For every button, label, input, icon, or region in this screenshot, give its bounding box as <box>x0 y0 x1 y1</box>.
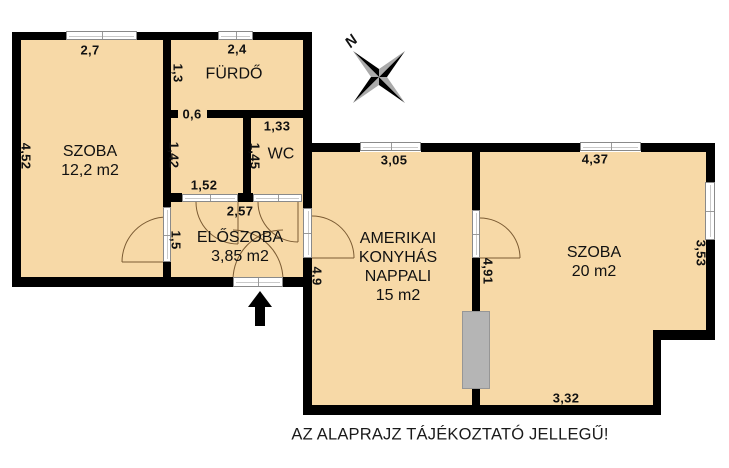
dim-label: 2,57 <box>227 204 254 219</box>
dim-label: 3,53 <box>694 240 709 267</box>
room-area: 20 m2 <box>567 262 621 281</box>
room-label-nappali: AMERIKAI KONYHÁS NAPPALI 15 m2 <box>359 229 437 305</box>
room-name: WC <box>268 145 295 164</box>
room-area: 3,85 m2 <box>197 247 283 266</box>
room-area: 15 m2 <box>359 286 437 305</box>
dim-label: 4,52 <box>19 143 34 170</box>
room-area: 12,2 m2 <box>61 161 119 180</box>
room-label-wc: WC <box>268 145 295 164</box>
room-label-szoba-right: SZOBA 20 m2 <box>567 243 621 281</box>
room-name: NAPPALI <box>359 267 437 286</box>
room-label-eloszoba: ELŐSZOBA 3,85 m2 <box>197 228 283 266</box>
disclaimer-text: AZ ALAPRAJZ TÁJÉKOZTATÓ JELLEGŰ! <box>291 426 608 445</box>
dim-label: 0,6 <box>183 107 202 122</box>
dim-label: 3,32 <box>553 391 580 406</box>
dim-label: 1,5 <box>169 231 184 250</box>
dim-label: 2,4 <box>228 42 247 57</box>
dim-label: 1,3 <box>171 64 186 83</box>
floor-plan: N 2,7 2,4 0,6 1,33 1,52 2,57 3,05 4,37 3… <box>0 0 729 468</box>
compass-star <box>353 51 405 103</box>
dim-label: 3,05 <box>381 153 408 168</box>
room-name: SZOBA <box>567 243 621 262</box>
entrance-arrow-icon <box>248 291 272 326</box>
room-label-szoba-left: SZOBA 12,2 m2 <box>61 142 119 180</box>
dim-label: 4,91 <box>481 258 496 285</box>
room-name: ELŐSZOBA <box>197 228 283 247</box>
dim-label: 1,33 <box>264 119 291 134</box>
room-name: KONYHÁS <box>359 248 437 267</box>
room-name: SZOBA <box>61 142 119 161</box>
room-name: AMERIKAI <box>359 229 437 248</box>
room-label-furdo: FÜRDŐ <box>206 65 263 84</box>
dim-label: 4,9 <box>310 267 325 286</box>
dim-label: 4,37 <box>582 152 609 167</box>
dim-label: 1,42 <box>167 142 182 169</box>
dim-label: 2,7 <box>81 43 100 58</box>
dim-label: 1,52 <box>191 178 218 193</box>
room-name: FÜRDŐ <box>206 65 263 84</box>
dim-label: 1,45 <box>248 143 263 170</box>
